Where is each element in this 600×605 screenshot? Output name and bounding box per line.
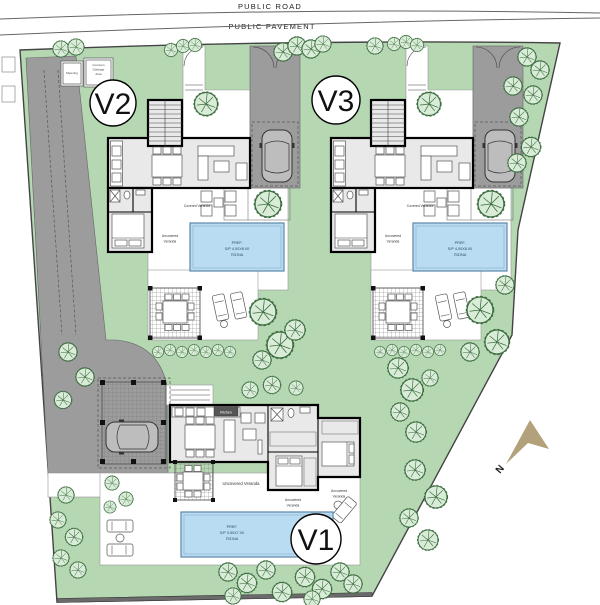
svg-text:Veranda: Veranda <box>333 495 346 499</box>
boundary-structure <box>2 57 15 72</box>
uncovered-veranda-label: Uncovered <box>285 498 302 502</box>
svg-text:Veranda: Veranda <box>287 504 300 508</box>
site-plan: Covered Veranda Uncovered Veranda PREF. … <box>0 0 600 605</box>
tree-icon <box>417 529 438 550</box>
road-band: PUBLIC ROAD PUBLIC PAVEMENT <box>0 2 600 35</box>
villa-v2-badge: V2 <box>90 80 136 126</box>
svg-text:ΠΙΣΙΝΑ: ΠΙΣΙΝΑ <box>226 537 239 541</box>
dining-table <box>185 425 215 449</box>
villa-v2-label: V2 <box>95 88 132 121</box>
public-road-label: PUBLIC ROAD <box>238 2 302 11</box>
road-edge-line <box>0 11 600 19</box>
garbage-label: Common <box>92 63 105 67</box>
villa-v1-label: V1 <box>298 524 335 557</box>
north-compass: N <box>494 420 549 476</box>
svg-text:S/P 3.50X7.00: S/P 3.50X7.00 <box>220 531 244 535</box>
villa-v3-badge: V3 <box>312 76 360 124</box>
pool-label: PREF. <box>227 525 238 529</box>
north-label: N <box>494 463 507 476</box>
uncovered-veranda-label: Uncovered Veranda <box>222 481 260 486</box>
sofa <box>224 420 235 452</box>
public-pavement-label: PUBLIC PAVEMENT <box>228 22 315 31</box>
svg-text:Garbage: Garbage <box>93 68 105 72</box>
villa-v3-label: V3 <box>318 85 355 118</box>
boundary-structure <box>2 86 15 102</box>
kitchen-label: Kitchen <box>220 411 232 415</box>
uncovered-veranda-label: Uncovered <box>331 489 348 493</box>
metering-label: Metering <box>66 71 78 75</box>
north-arrow-icon <box>506 420 549 464</box>
svg-text:Area: Area <box>95 72 102 76</box>
villa-v1-badge: V1 <box>291 514 341 564</box>
